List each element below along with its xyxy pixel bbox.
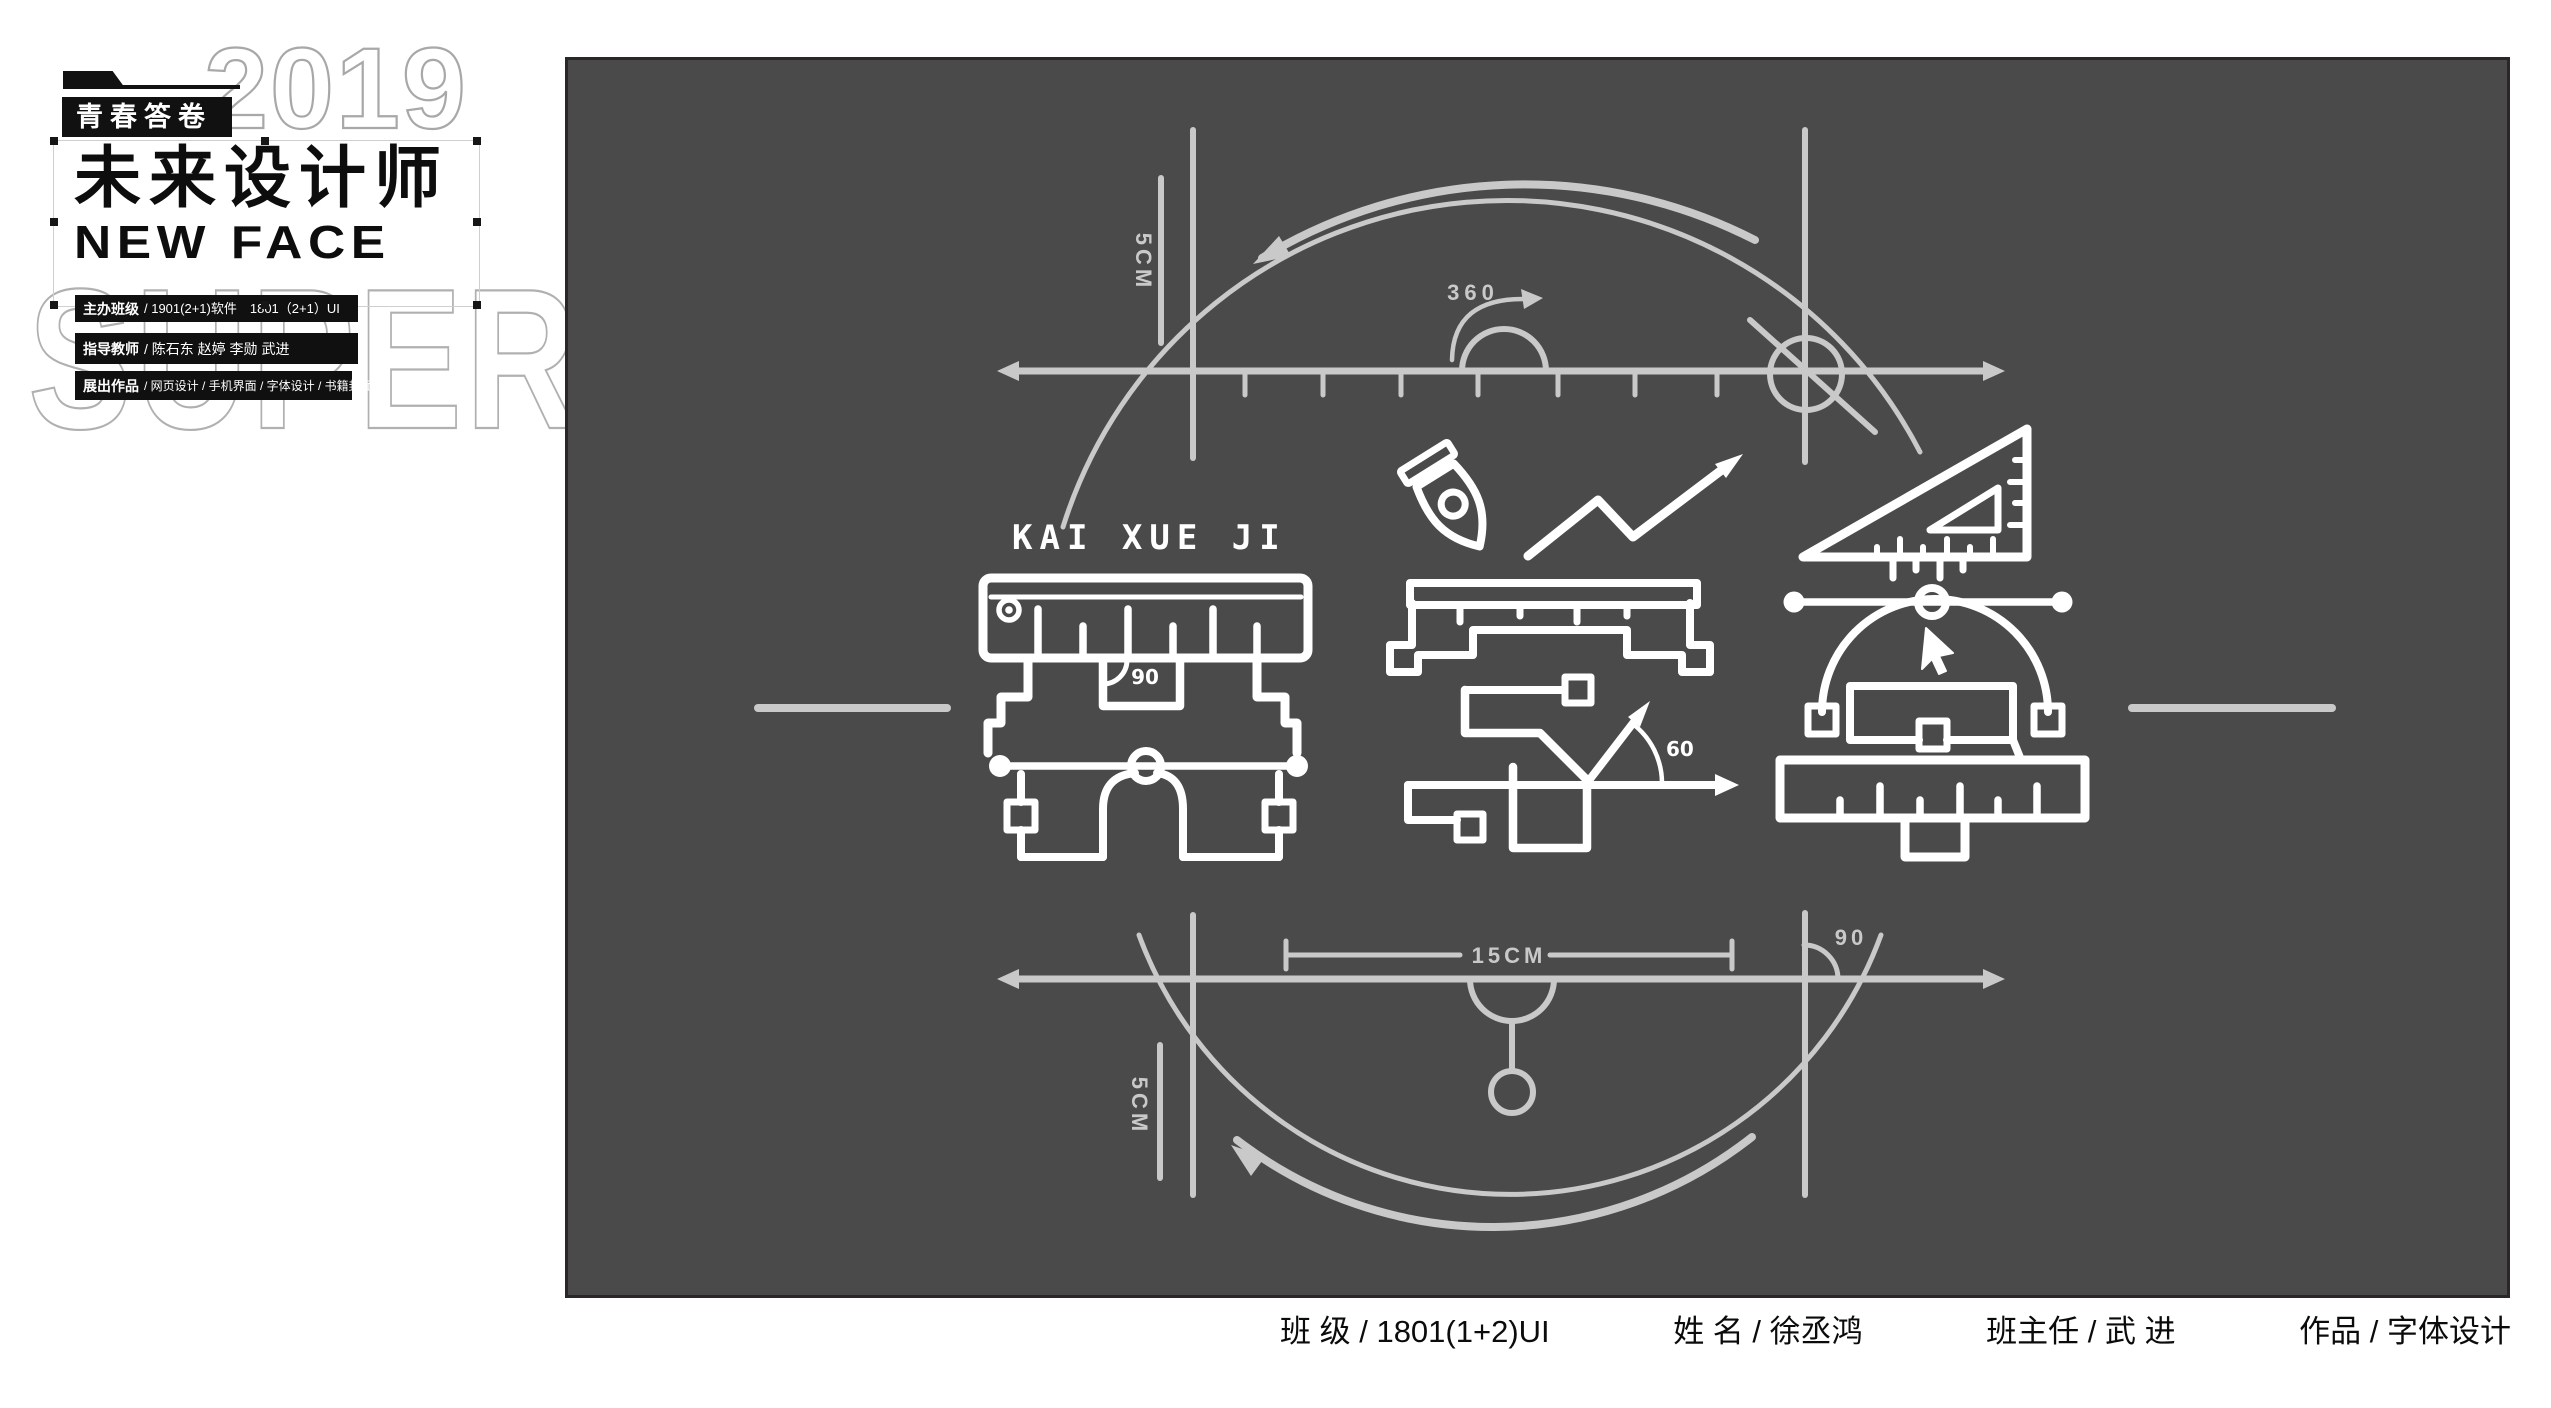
glyph-xue [1390, 442, 1727, 848]
subtitle: NEW FACE [74, 215, 391, 269]
info-text: / 1901(2+1)软件 1801（2+1）UI [144, 302, 340, 315]
arrow-left-icon [997, 969, 1019, 989]
set-square-hole [1930, 488, 1998, 530]
selection-handle [50, 218, 58, 226]
info-text: / 网页设计 / 手机界面 / 字体设计 / 书籍封面 [144, 380, 373, 392]
selection-handle [50, 137, 58, 145]
ji-ruler-ticks [1840, 786, 2037, 814]
kai-arch-right [1157, 773, 1183, 857]
arrow-right-icon [1983, 361, 2005, 381]
caption-name: 姓 名 / 徐丞鸿 [1673, 1306, 1862, 1351]
info-text: / 陈石东 赵婷 李勋 武进 [144, 342, 289, 356]
anchor-square [1919, 721, 1947, 749]
anchor-stubs [1021, 774, 1279, 857]
anchor-square [1265, 802, 1293, 830]
pinyin-title: KAI XUE JI [1012, 518, 1287, 558]
font-design-artwork: 5CM 360 15CM 90 5CM KAI XUE JI 90 [565, 57, 2510, 1298]
kai-left-leg [988, 658, 1028, 753]
xue-left-connector [1408, 785, 1457, 820]
folder-edge [63, 85, 240, 89]
info-row-classes: 主办班级 / 1901(2+1)软件 1801（2+1）UI [75, 295, 358, 322]
caption-work: 作品 / 字体设计 [2299, 1306, 2511, 1351]
glyph-kai [983, 578, 1308, 857]
xue-top-ruler [1410, 583, 1697, 605]
badge-label: 青春答卷 [62, 97, 232, 137]
selection-handle [473, 137, 481, 145]
selection-handle [261, 137, 269, 145]
pen-tool-icon [1400, 442, 1504, 562]
selection-handle [50, 301, 58, 309]
rotation-arrowhead-icon [1521, 289, 1543, 309]
construction-lines [758, 130, 2332, 1227]
angle-60-arc [1633, 724, 1662, 783]
cursor-icon [1922, 628, 1953, 674]
handle-dot [2052, 592, 2073, 613]
selection-handle [261, 301, 269, 309]
handle-dot [989, 755, 1011, 777]
anchor-square [1007, 802, 1035, 830]
poster-canvas: 5CM 360 15CM 90 5CM KAI XUE JI 90 [565, 57, 2510, 1298]
ji-mid-rect [1850, 686, 2013, 740]
growth-chart-line [1528, 466, 1727, 556]
watermark-year: 2019 [204, 25, 468, 153]
caption-bar: 班 级 / 1801(1+2)UI 姓 名 / 徐丞鸿 班主任 / 武 进 作品… [1280, 1306, 2511, 1351]
anchor-square [1565, 677, 1591, 703]
kai-right-leg [1257, 658, 1297, 753]
caption-class: 班 级 / 1801(1+2)UI [1280, 1306, 1550, 1351]
arrow-left-icon [997, 361, 1019, 381]
ji-bottom-notch [1905, 818, 1965, 857]
glyph-ji [1780, 429, 2085, 857]
info-row-teachers: 指导教师 / 陈石东 赵婷 李勋 武进 [75, 333, 358, 364]
base-arrowhead-icon [1715, 774, 1739, 796]
caption-teacher: 班主任 / 武 进 [1986, 1306, 2175, 1351]
info-label: 指导教师 [83, 342, 139, 356]
main-title: 未来设计师 [74, 143, 474, 215]
arrow-right-icon [1983, 969, 2005, 989]
title-block: 2019 SUPER 青春答卷 未来设计师 NEW FACE 主办班级 / 19… [0, 0, 565, 460]
info-label: 主办班级 [83, 302, 139, 316]
xue-angle-label: 60 [1666, 737, 1694, 761]
kai-angle-label: 90 [1131, 665, 1159, 689]
selection-handle [473, 301, 481, 309]
bottom-5cm-label: 5CM [1127, 1077, 1152, 1135]
protractor-arc [1462, 329, 1546, 371]
plumb-ring [1491, 1071, 1533, 1113]
bottom-swing-arrow-arc [1237, 1137, 1752, 1227]
top-5cm-label: 5CM [1131, 233, 1156, 291]
handle-dot [1784, 592, 1805, 613]
selection-handle [473, 218, 481, 226]
xue-crown [1390, 603, 1710, 672]
kai-arch-left [1103, 773, 1135, 857]
rotation-label: 360 [1447, 280, 1499, 305]
top-swing-arrow-arc [1262, 184, 1755, 258]
info-row-works: 展出作品 / 网页设计 / 手机界面 / 字体设计 / 书籍封面 [75, 371, 352, 400]
ruler-ticks [1038, 609, 1257, 658]
handle-dot [1286, 755, 1308, 777]
info-label: 展出作品 [83, 379, 139, 393]
plumb-bowl [1470, 979, 1554, 1021]
width-label: 15CM [1472, 943, 1547, 968]
top-axis-ticks [1245, 371, 1717, 395]
anchor-square [1457, 814, 1483, 840]
right-angle-arc [1804, 945, 1838, 979]
right-angle-label: 90 [1835, 925, 1867, 950]
ruler-hole-dot [1005, 606, 1013, 614]
